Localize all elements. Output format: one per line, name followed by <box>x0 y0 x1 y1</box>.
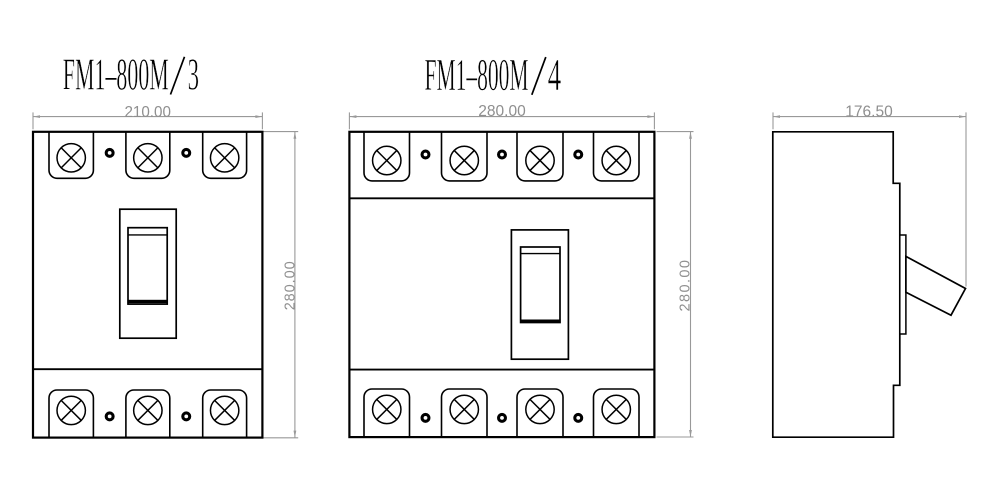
svg-text:3: 3 <box>188 49 199 100</box>
svg-text:176.50: 176.50 <box>845 103 893 120</box>
svg-text:FM1–800M: FM1–800M <box>63 49 169 100</box>
svg-text:280.00: 280.00 <box>478 103 526 120</box>
svg-text:FM1–800M: FM1–800M <box>425 49 529 100</box>
svg-text:4: 4 <box>548 49 561 100</box>
svg-text:280.00: 280.00 <box>283 261 299 310</box>
svg-text:210.00: 210.00 <box>124 104 171 121</box>
svg-text:280.00: 280.00 <box>678 260 694 312</box>
